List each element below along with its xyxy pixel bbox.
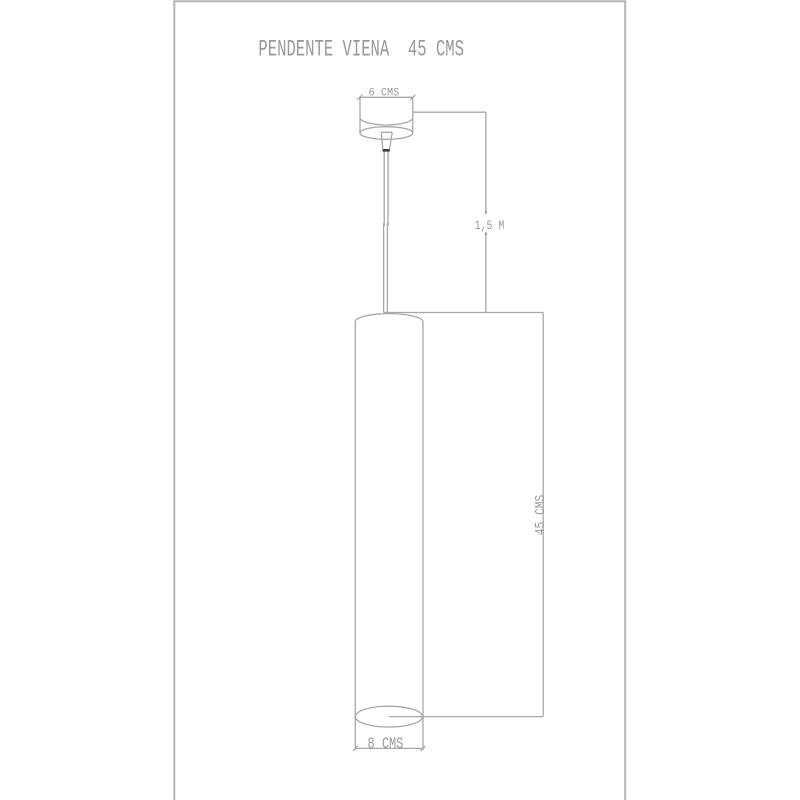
svg-text:PENDENTE VIENA 45 CMS: PENDENTE VIENA 45 CMS [258, 37, 464, 63]
svg-text:6 CMS: 6 CMS [369, 87, 400, 99]
svg-text:45 CMS: 45 CMS [533, 495, 548, 536]
svg-text:8 CMS: 8 CMS [367, 737, 403, 754]
svg-text:1,5 M: 1,5 M [475, 217, 505, 233]
